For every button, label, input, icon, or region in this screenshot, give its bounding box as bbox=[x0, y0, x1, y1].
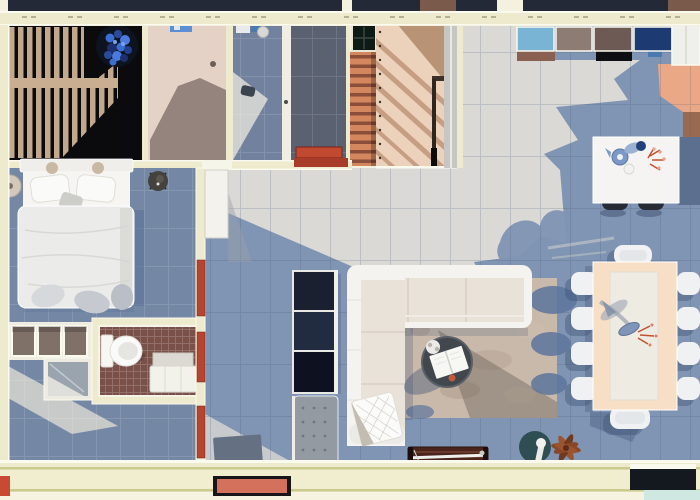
blue-plant bbox=[96, 25, 138, 67]
wall-divider bbox=[346, 25, 350, 160]
entry-door bbox=[197, 406, 205, 458]
exterior-teal bbox=[644, 490, 700, 500]
railing-post bbox=[432, 79, 436, 149]
left-wall bbox=[0, 25, 9, 460]
bedroom-door bbox=[197, 260, 205, 316]
red-mat bbox=[296, 147, 342, 158]
dining-chair bbox=[677, 272, 700, 295]
pendant-lamp bbox=[258, 27, 269, 38]
wall-divider bbox=[142, 25, 148, 160]
floor-plan-svg bbox=[0, 0, 700, 500]
bathroom bbox=[92, 318, 204, 404]
balcony-deck bbox=[9, 25, 142, 160]
doorway-gap bbox=[202, 160, 232, 170]
shower bbox=[44, 358, 92, 400]
bathroom-door bbox=[197, 332, 205, 382]
sink-item bbox=[648, 51, 662, 57]
floor-plan-render bbox=[0, 0, 700, 500]
door-handle bbox=[284, 100, 288, 104]
doormat bbox=[217, 479, 287, 493]
counter-taupe bbox=[556, 27, 592, 51]
small-object bbox=[210, 61, 216, 67]
entry-stairs bbox=[350, 25, 376, 166]
headboard-lamp bbox=[46, 162, 58, 174]
counter-dark-taupe bbox=[594, 27, 632, 51]
vanity-cabinet bbox=[150, 366, 196, 392]
counter-navy bbox=[634, 27, 672, 51]
sliding-door bbox=[282, 25, 291, 160]
dining-chair bbox=[677, 377, 700, 400]
white-door-panel bbox=[205, 170, 228, 238]
dining-chair bbox=[677, 342, 700, 365]
top-wall bbox=[0, 11, 700, 26]
ottoman bbox=[292, 396, 338, 470]
bath-step bbox=[153, 353, 193, 366]
wardrobe bbox=[8, 322, 92, 360]
headboard bbox=[20, 159, 133, 172]
counter-black-strip bbox=[596, 51, 632, 61]
island-shadow bbox=[678, 137, 700, 205]
terrace-room bbox=[148, 25, 226, 160]
double-bed bbox=[18, 159, 144, 317]
bedside-stool bbox=[148, 171, 168, 191]
counter-brown-strip bbox=[517, 51, 555, 61]
balcony-planter bbox=[8, 0, 342, 11]
kitchen-left-wall bbox=[457, 11, 463, 168]
headboard-lamp bbox=[92, 162, 104, 174]
corner-red-door bbox=[0, 476, 10, 496]
wall-divider bbox=[226, 25, 233, 160]
red-door-bar bbox=[294, 158, 348, 167]
dining-chair bbox=[677, 307, 700, 330]
bottom-window bbox=[630, 469, 696, 490]
gray-tile-room bbox=[291, 25, 346, 160]
media-console bbox=[292, 270, 338, 394]
sink-fixture bbox=[170, 25, 192, 32]
blue-tile-room bbox=[233, 25, 282, 160]
appliance bbox=[236, 25, 250, 33]
counter-blue bbox=[517, 27, 554, 51]
